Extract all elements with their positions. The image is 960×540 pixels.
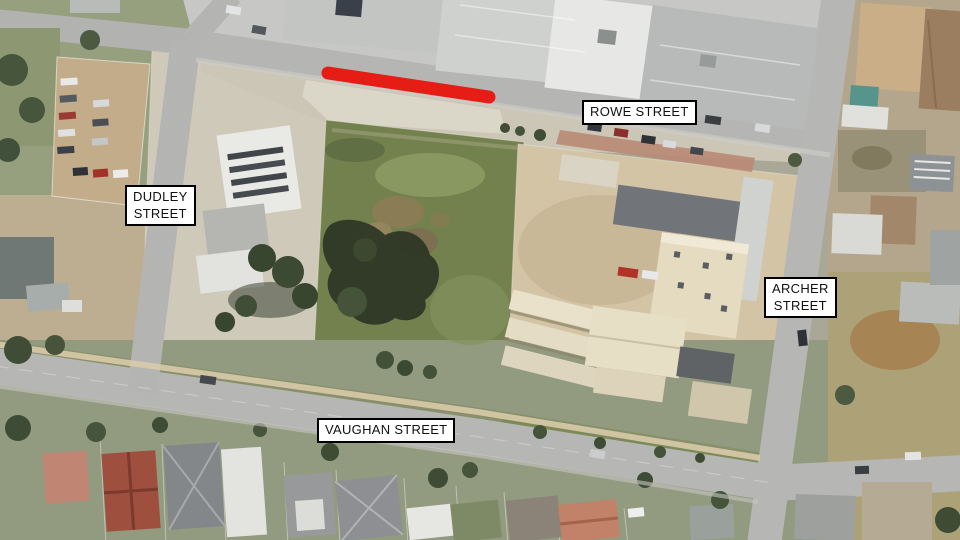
street-label-dudley: DUDLEY STREET	[125, 185, 196, 226]
street-label-text: DUDLEY	[133, 189, 188, 206]
aerial-map: ROWE STREET DUDLEY STREET ARCHER STREET …	[0, 0, 960, 540]
street-label-text: STREET	[133, 206, 188, 223]
street-label-vaughan: VAUGHAN STREET	[317, 418, 455, 443]
street-label-text: ROWE STREET	[590, 104, 689, 121]
street-label-rowe: ROWE STREET	[582, 100, 697, 125]
satellite-canvas	[0, 0, 960, 540]
street-label-text: VAUGHAN STREET	[325, 422, 447, 439]
street-label-archer: ARCHER STREET	[764, 277, 837, 318]
solar-roof-building	[909, 154, 955, 192]
street-label-text: STREET	[772, 298, 829, 315]
street-label-text: ARCHER	[772, 281, 829, 298]
